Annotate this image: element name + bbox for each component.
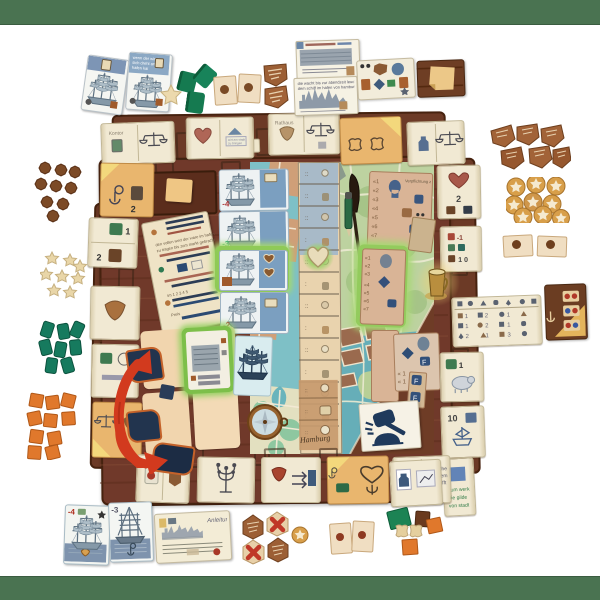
svg-text:«5: «5 [372, 215, 378, 221]
svg-text:«2: «2 [373, 188, 379, 194]
svg-text:«3: «3 [364, 271, 370, 277]
svg-text:1: 1 [125, 226, 130, 236]
svg-text:2: 2 [96, 252, 101, 262]
svg-text:-3: -3 [111, 505, 119, 514]
svg-text:2: 2 [456, 194, 461, 204]
svg-text::: : [305, 370, 307, 376]
svg-text:zu bringen: zu bringen [228, 141, 242, 145]
svg-text:«2: «2 [365, 263, 371, 269]
svg-text:2: 2 [131, 204, 136, 214]
svg-text:von stadt: von stadt [449, 502, 470, 509]
svg-text:«3: «3 [372, 197, 378, 203]
svg-text:«4: «4 [364, 282, 370, 288]
svg-text:1: 1 [485, 333, 489, 339]
svg-text:::: :: [305, 388, 308, 394]
svg-text:2: 2 [485, 323, 489, 329]
svg-text:Anleitung: Anleitung [206, 517, 229, 524]
svg-text:::: :: [305, 348, 309, 354]
svg-text:dem schiff im hafen von hambur: dem schiff im hafen von hamburg [298, 84, 356, 91]
svg-text:Preis: Preis [171, 311, 181, 318]
svg-text:::: :: [305, 194, 309, 200]
svg-text:«7: «7 [371, 233, 377, 239]
svg-text:«5: «5 [364, 290, 370, 296]
svg-text:F: F [414, 378, 419, 385]
svg-text:«1: «1 [373, 179, 379, 185]
svg-text::: : [305, 326, 307, 332]
svg-text:3: 3 [507, 333, 511, 339]
svg-text:::: :: [305, 216, 309, 222]
svg-text:«6: «6 [371, 224, 377, 230]
svg-text:F: F [422, 360, 427, 367]
svg-text:hafen kai: hafen kai [132, 65, 149, 71]
svg-text:1: 1 [465, 324, 469, 330]
svg-text:1: 1 [507, 313, 511, 319]
svg-text:2: 2 [465, 334, 469, 340]
svg-text:-4: -4 [222, 199, 230, 208]
svg-text:::: :: [305, 172, 309, 178]
svg-text:« 1: « 1 [397, 371, 406, 377]
svg-text:2: 2 [485, 313, 489, 319]
svg-text::: : [305, 282, 307, 288]
svg-text:::: :: [305, 304, 309, 310]
svg-text:-1: -1 [457, 235, 463, 242]
svg-text:Verpflichtung zu America: Verpflichtung zu America [405, 178, 431, 185]
svg-text:«1: «1 [365, 255, 371, 261]
svg-text:-4: -4 [68, 507, 76, 516]
svg-text:::: :: [305, 409, 308, 415]
svg-text:10: 10 [447, 413, 457, 423]
svg-text:Rathaus: Rathaus [275, 120, 294, 126]
svg-text:«7: «7 [363, 306, 369, 312]
svg-text:«6: «6 [363, 298, 369, 304]
svg-text:1: 1 [507, 323, 511, 329]
svg-text:« 1: « 1 [398, 379, 407, 385]
svg-text:1: 1 [465, 314, 469, 320]
svg-text:1: 1 [459, 361, 464, 370]
svg-text:Kontor: Kontor [109, 130, 124, 137]
svg-text::: : [305, 238, 307, 244]
svg-text:«4: «4 [372, 206, 378, 212]
